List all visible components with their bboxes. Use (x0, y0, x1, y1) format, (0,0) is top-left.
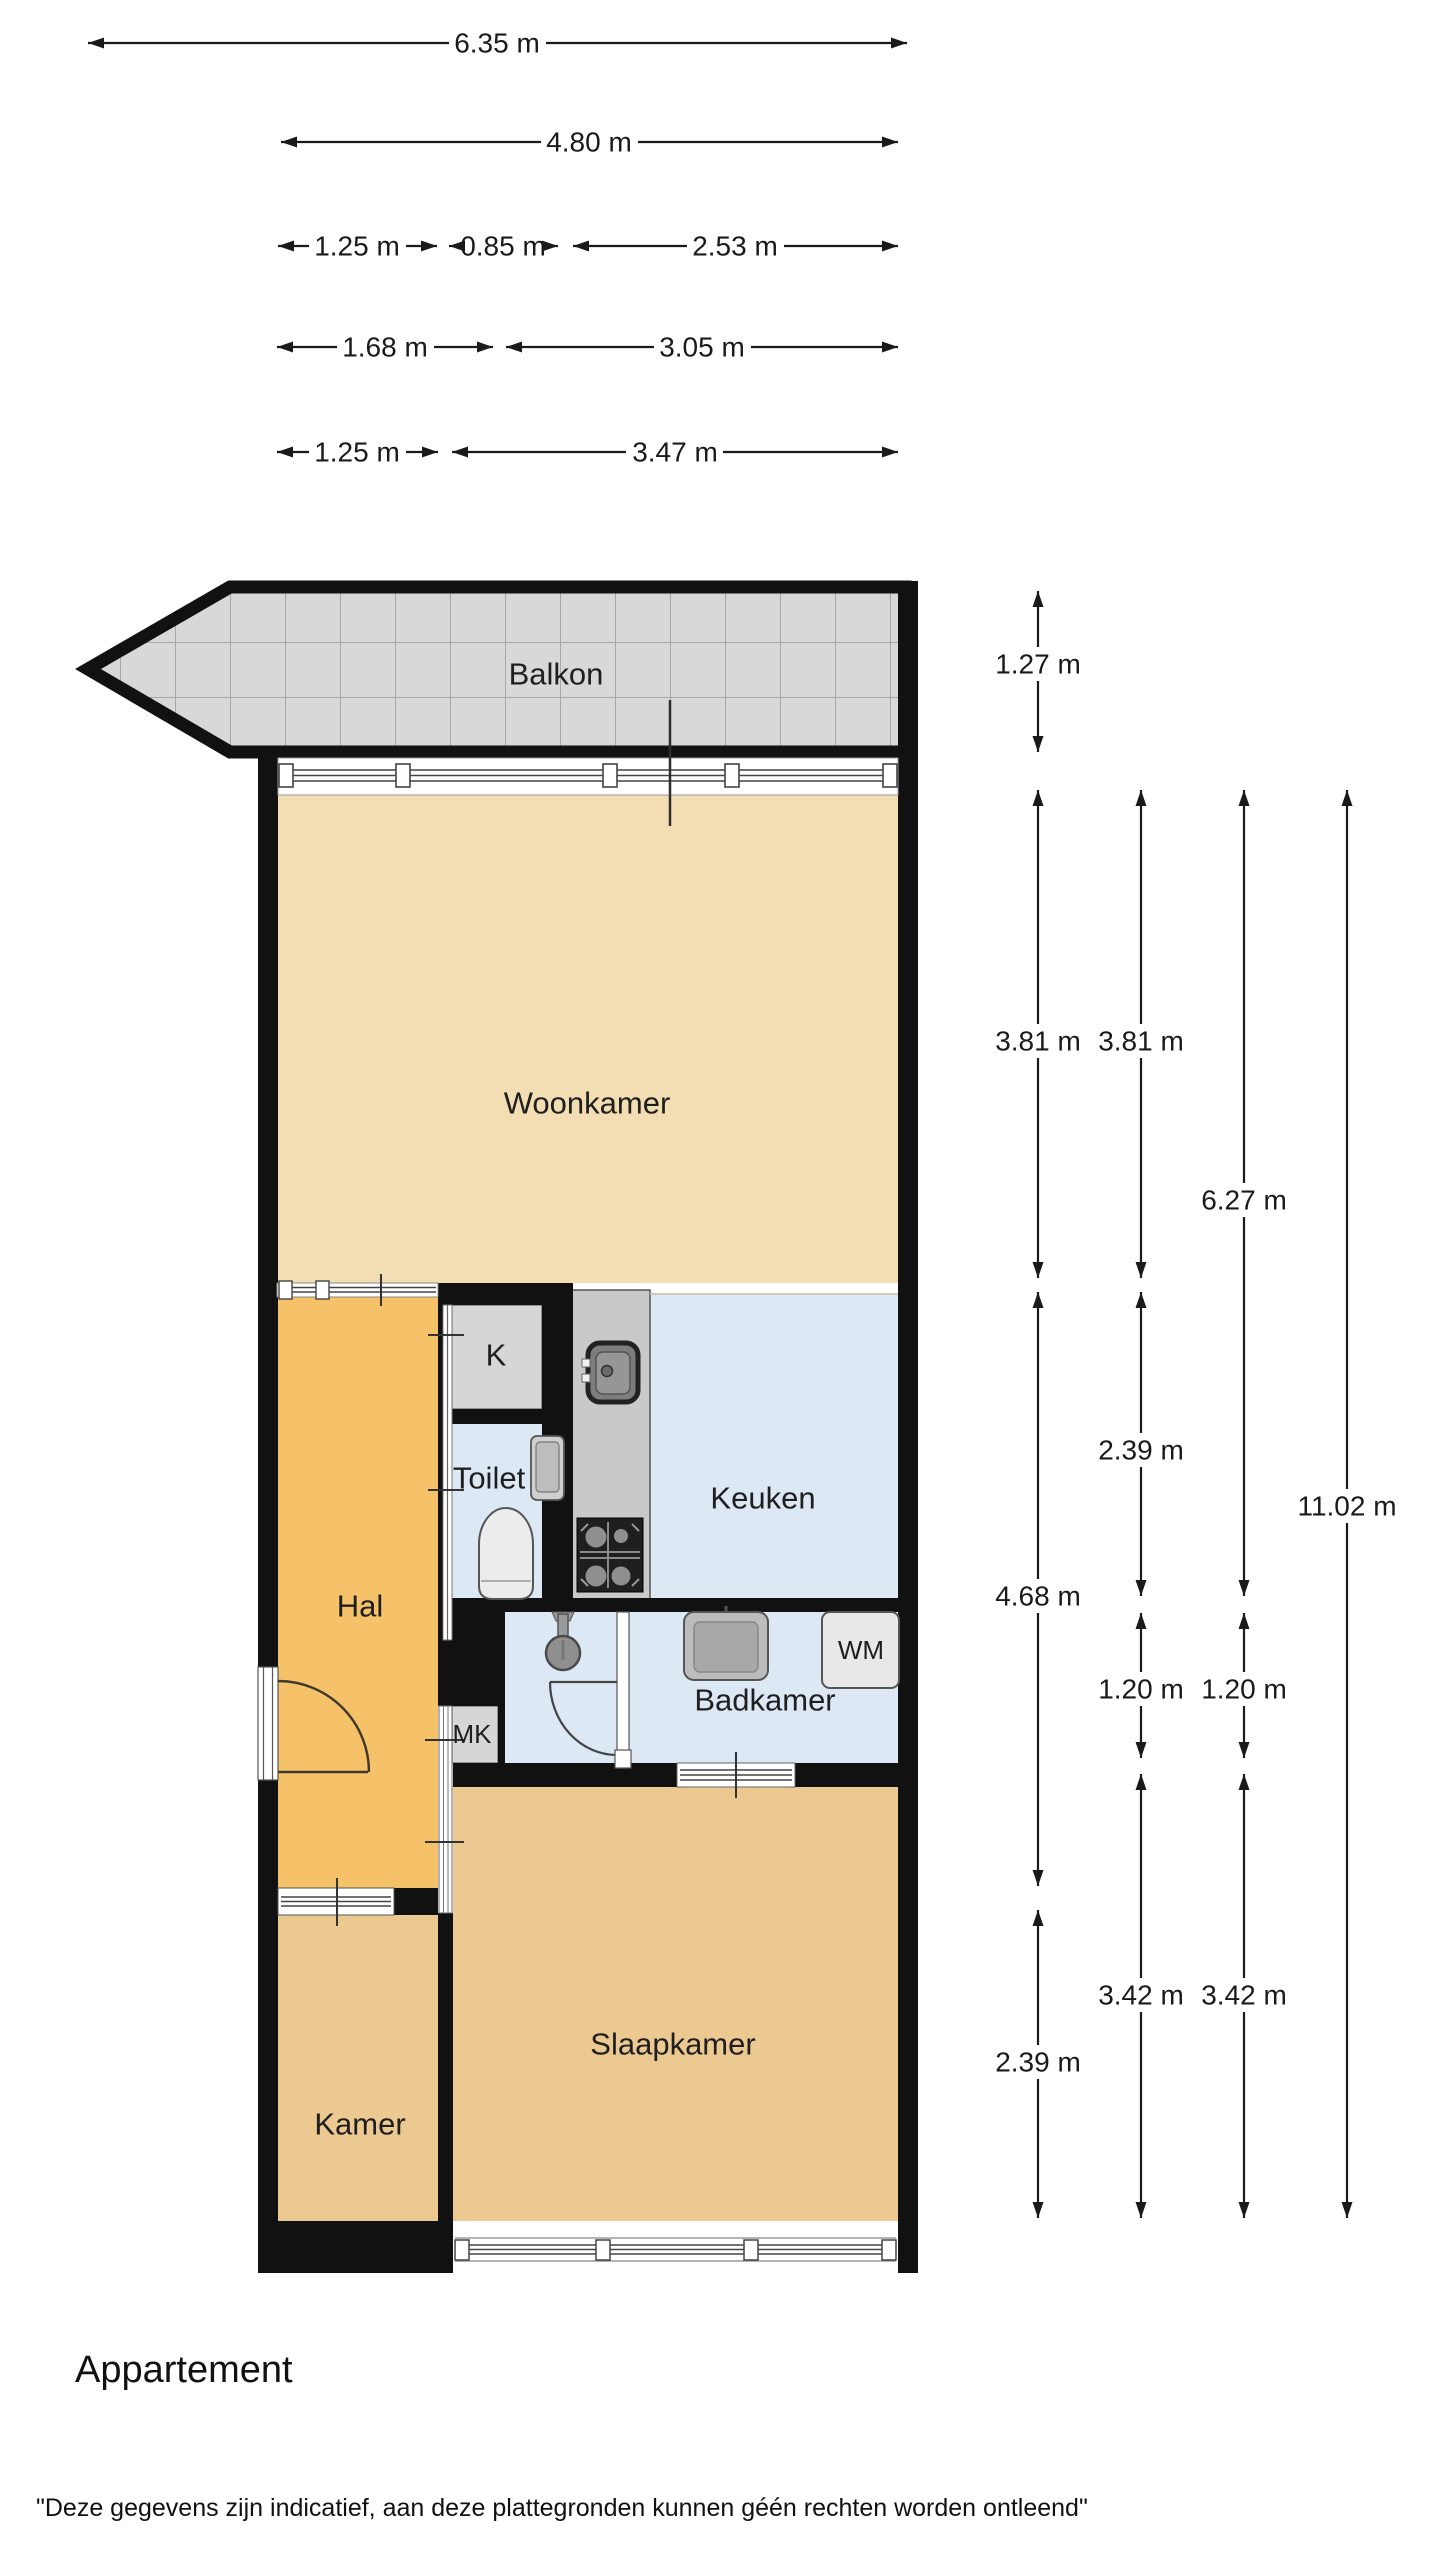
dim-label: 3.81 m (995, 1026, 1081, 1057)
window-slaapkamer (453, 2221, 898, 2273)
wall-k-toilet (443, 1409, 563, 1424)
dimension-right-labels: 1.27 m 3.81 m 4.68 m 2.39 m 3.81 m 2.39 … (995, 649, 1396, 2078)
dim-label: 6.27 m (1201, 1185, 1287, 1216)
kitchen-sink (582, 1343, 638, 1402)
dimension-top-labels: 6.35 m 4.80 m 1.25 m 0.85 m 2.53 m 1.68 … (314, 28, 778, 468)
label-keuken: Keuken (710, 1481, 815, 1516)
floorplan-canvas: Balkon Woonkamer K Toilet Keuken Hal MK … (0, 0, 1440, 2560)
dim-label: 3.42 m (1098, 1980, 1184, 2011)
floorplan-page: Balkon Woonkamer K Toilet Keuken Hal MK … (0, 0, 1440, 2560)
room-keuken (650, 1293, 898, 1600)
room-kamer (278, 1915, 438, 2221)
dim-label: 2.39 m (995, 2047, 1081, 2078)
label-balkon: Balkon (509, 657, 604, 692)
dim-label: 0.85 m (460, 231, 546, 262)
label-hal: Hal (337, 1589, 384, 1624)
room-woonkamer (278, 795, 898, 1283)
wall-hal-k-sliver (438, 1295, 443, 1640)
gas-hob (577, 1518, 643, 1592)
label-wasmachine: WM (838, 1635, 884, 1665)
dim-label: 1.25 m (314, 231, 400, 262)
wall-kamer-slaapkamer (438, 1913, 453, 2273)
dim-label: 1.68 m (342, 332, 428, 363)
balcony (88, 587, 905, 752)
label-woonkamer: Woonkamer (504, 1086, 671, 1121)
dim-label: 1.20 m (1098, 1674, 1184, 1705)
bathroom-sink (684, 1606, 768, 1680)
wall-mk-right (498, 1706, 505, 1763)
wall-hal-right-stub (438, 1640, 452, 1706)
dim-label: 3.05 m (659, 332, 745, 363)
label-badkamer: Badkamer (694, 1683, 835, 1718)
wall-mid-horizontal (438, 1598, 898, 1612)
dim-label: 2.39 m (1098, 1435, 1184, 1466)
dim-label: 6.35 m (454, 28, 540, 59)
dim-label: 3.81 m (1098, 1026, 1184, 1057)
wall-hal-kamer-stub (394, 1888, 438, 1915)
label-slaapkamer: Slaapkamer (590, 2027, 755, 2062)
wall-right (898, 581, 918, 2273)
dimensions-right (1038, 591, 1347, 2218)
wall-left (258, 752, 278, 2273)
dim-label: 3.47 m (632, 437, 718, 468)
room-slaapkamer (453, 1787, 898, 2221)
toilet-bowl (479, 1508, 533, 1599)
wall-badkamer-left (452, 1612, 505, 1706)
label-closet-k: K (486, 1338, 507, 1373)
wall-badkamer-bottom (453, 1763, 898, 1787)
dim-label: 4.80 m (546, 127, 632, 158)
disclaimer-text: "Deze gegevens zijn indicatief, aan deze… (36, 2494, 1088, 2522)
label-toilet: Toilet (453, 1461, 526, 1496)
dim-label: 3.42 m (1201, 1980, 1287, 2011)
dim-label: 4.68 m (995, 1581, 1081, 1612)
dim-label: 11.02 m (1297, 1491, 1396, 1522)
dim-label: 2.53 m (692, 231, 778, 262)
toilet-fontein (531, 1436, 564, 1500)
label-closet-mk: MK (453, 1719, 493, 1749)
dim-label: 1.27 m (995, 649, 1081, 680)
dim-label: 1.25 m (314, 437, 400, 468)
balcony-tiles (88, 587, 905, 752)
page-title: Appartement (75, 2349, 293, 2391)
wall-bottom-left (258, 2221, 453, 2273)
dim-label: 1.20 m (1201, 1674, 1287, 1705)
label-kamer: Kamer (314, 2107, 405, 2142)
